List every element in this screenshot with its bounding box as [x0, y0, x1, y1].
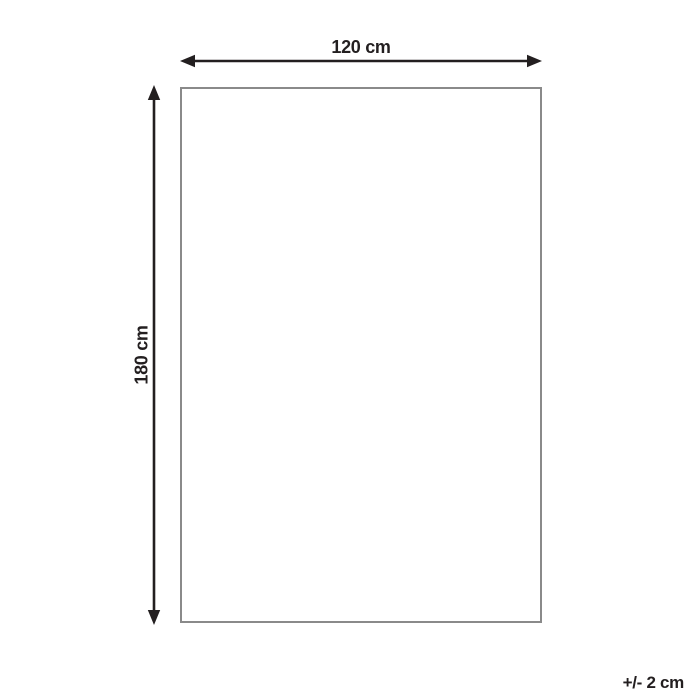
height-arrow-top-head-icon — [148, 85, 160, 100]
width-dimension-label: 120 cm — [180, 37, 542, 58]
product-outline — [180, 87, 542, 623]
tolerance-label: +/- 2 cm — [623, 673, 684, 693]
height-dimension-label: 180 cm — [132, 325, 153, 384]
dimension-diagram: 120 cm 180 cm +/- 2 cm — [0, 0, 700, 700]
height-arrow-bottom-head-icon — [148, 610, 160, 625]
